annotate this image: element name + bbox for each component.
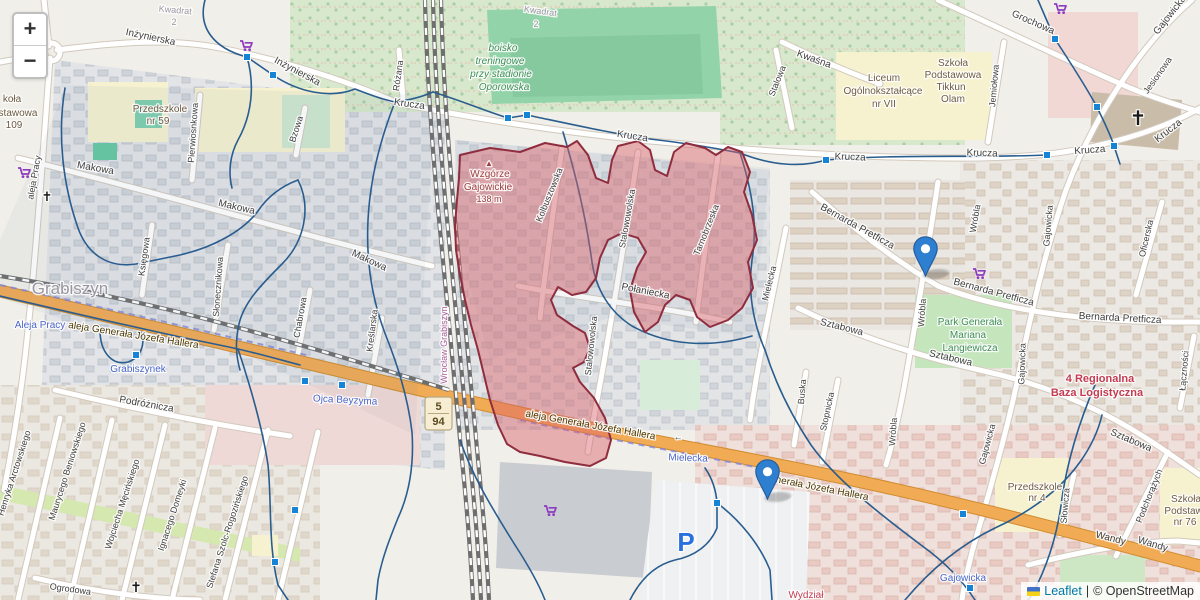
map-label: Mielecka <box>668 452 708 464</box>
vertex-handle[interactable] <box>292 507 299 514</box>
shield-ref-top: 5 <box>435 401 441 413</box>
map-label: Ogólnokształcące <box>844 86 923 97</box>
vertex-handle[interactable] <box>272 559 279 566</box>
map-label: nr VII <box>872 99 896 110</box>
map-label: ← <box>673 431 683 442</box>
attribution-bar: Leaflet | © OpenStreetMap <box>1021 582 1200 600</box>
vertex-handle[interactable] <box>339 382 346 389</box>
map-marker[interactable] <box>755 459 780 500</box>
map-label: Tikkun <box>936 82 965 93</box>
road-shield: 594 <box>425 397 452 430</box>
map-label: Przedszkole <box>133 104 188 115</box>
map-label: przy stadionie <box>469 69 532 80</box>
map-label: koła <box>3 94 22 105</box>
vertex-handle[interactable] <box>1052 36 1059 43</box>
map-label: Oporowska <box>479 82 530 93</box>
map-label: Wzgórze <box>470 169 510 180</box>
map-label: Liceum <box>868 73 900 84</box>
map-label: nr 59 <box>147 116 170 127</box>
map-marker[interactable] <box>913 236 938 277</box>
vertex-handle[interactable] <box>960 511 967 518</box>
map-label: Park Generała <box>938 317 1003 328</box>
map-label: Wydział <box>789 590 825 600</box>
map-label: treningowe <box>476 56 525 67</box>
map-canvas: 594 Kwadrat2Kwadrat2InżynierskaInżyniers… <box>0 0 1200 600</box>
map-label: 4 Regionalna <box>1066 373 1135 385</box>
map-label: Wrocław Grabiszyn <box>439 306 449 383</box>
map-label: 2 <box>171 17 176 27</box>
map-label: Przedszkole <box>1008 482 1063 493</box>
map-label: ✝ <box>1130 108 1147 130</box>
map-label: Szkoła <box>1171 494 1200 505</box>
map-label: Krucza <box>1074 144 1106 157</box>
map-label: Grabiszyn <box>32 279 109 298</box>
map-label: boisko <box>489 43 518 54</box>
map-label: stawowa <box>0 108 38 119</box>
map-label: ✝ <box>130 579 142 595</box>
vertex-handle[interactable] <box>244 54 251 61</box>
map-label: Krucza <box>966 147 998 159</box>
ukraine-flag-icon <box>1027 587 1040 596</box>
zoom-in-button[interactable]: + <box>14 14 46 45</box>
zoom-out-button[interactable]: − <box>14 46 46 77</box>
map-label: Baza Logistyczna <box>1051 387 1144 399</box>
vertex-handle[interactable] <box>714 500 721 507</box>
vertex-handle[interactable] <box>823 157 830 164</box>
osm-attribution: © OpenStreetMap <box>1093 584 1194 598</box>
map-root[interactable]: 594 Kwadrat2Kwadrat2InżynierskaInżyniers… <box>0 0 1200 600</box>
shield-ref-bottom: 94 <box>432 416 445 428</box>
map-label: ▲ <box>485 159 493 168</box>
vertex-handle[interactable] <box>1111 143 1118 150</box>
vertex-handle[interactable] <box>133 352 140 359</box>
map-label: nr 76 <box>1174 517 1197 528</box>
vertex-handle[interactable] <box>1044 152 1051 159</box>
map-label: Wróbla <box>887 417 899 446</box>
vertex-handle[interactable] <box>1094 104 1101 111</box>
leaflet-link[interactable]: Leaflet <box>1044 584 1082 598</box>
vertex-handle[interactable] <box>270 72 277 79</box>
map-label: 109 <box>6 120 23 131</box>
attribution-separator: | <box>1086 584 1089 598</box>
vertex-handle[interactable] <box>505 115 512 122</box>
vertex-handle[interactable] <box>302 378 309 385</box>
map-label: Mariana <box>950 330 987 341</box>
map-label: Gajowickie <box>464 182 513 193</box>
map-label: Podstawowa <box>925 70 982 81</box>
map-label: Podstawow <box>1164 506 1200 517</box>
map-label: Szkoła <box>938 58 968 69</box>
map-label: Olam <box>941 94 965 105</box>
map-label: nr 4 <box>1028 493 1046 504</box>
map-label: Aleja Pracy <box>15 320 66 331</box>
vertex-handle[interactable] <box>524 112 531 119</box>
map-label: P <box>677 527 694 557</box>
vertex-handle[interactable] <box>967 585 974 592</box>
map-label: 138 m <box>476 194 501 204</box>
map-label: Wróbla <box>916 298 928 327</box>
map-label: Gajowicka <box>1016 343 1027 385</box>
map-label: Grabiszynek <box>110 364 167 375</box>
map-label: 2 <box>533 19 538 29</box>
map-label: Krucza <box>834 151 866 163</box>
map-label: ✝ <box>42 189 53 204</box>
zoom-control: + − <box>12 12 48 79</box>
map-label: Gajowicka <box>940 573 987 584</box>
